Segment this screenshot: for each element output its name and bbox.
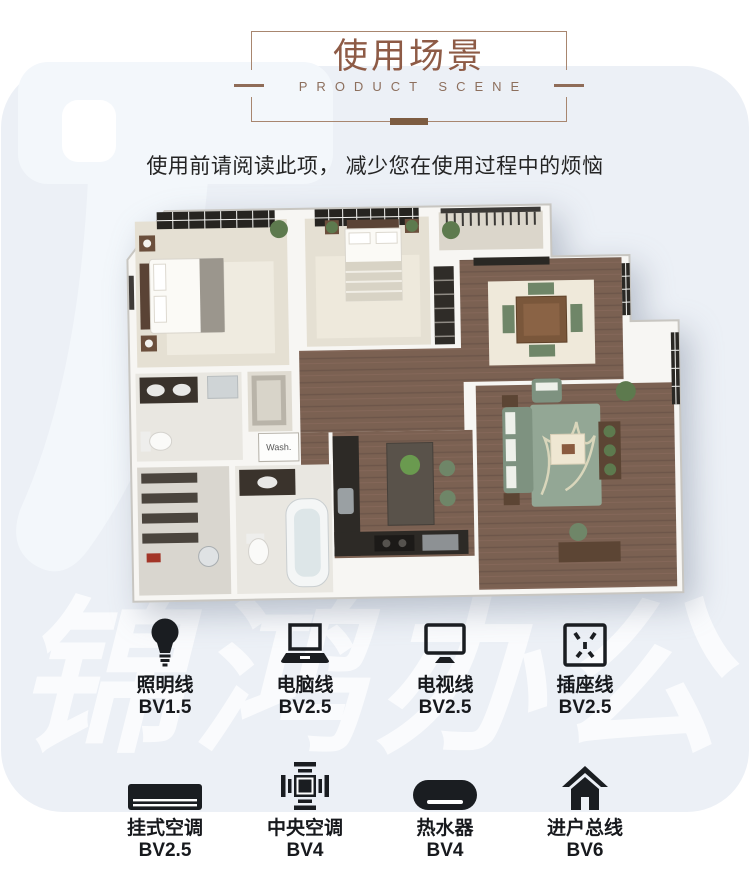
spec-value: BV2.5	[139, 840, 192, 862]
title-dash-right	[554, 84, 584, 87]
floor-plan-svg: Wash.	[124, 197, 686, 612]
spec-item-water-heater: 热水器 BV4	[375, 753, 515, 862]
spec-value: BV4	[427, 840, 464, 862]
spec-item-main-line: 进户总线 BV6	[515, 753, 655, 862]
title-box-border-segment	[566, 97, 567, 121]
socket-icon	[562, 610, 608, 668]
title-box-border-segment	[251, 97, 252, 121]
spec-label: 照明线	[136, 675, 193, 697]
floor-plan-image: Wash.	[124, 197, 686, 612]
title-dash-left	[234, 84, 264, 87]
spec-item-socket: 插座线 BV2.5	[515, 610, 655, 719]
section-subtitle-en: PRODUCT SCENE	[251, 79, 567, 94]
wash-frame-label: Wash.	[266, 442, 291, 452]
intro-text: 使用前请阅读此项， 减少您在使用过程中的烦恼	[0, 150, 750, 180]
spec-grid: 照明线 BV1.5 电脑线 BV2.5 电视线 BV2.5	[95, 610, 655, 862]
spec-item-wall-ac: 挂式空调 BV2.5	[95, 753, 235, 862]
tv-icon	[421, 610, 469, 668]
house-icon	[561, 753, 609, 811]
spec-label: 插座线	[556, 675, 613, 697]
spec-item-lighting: 照明线 BV1.5	[95, 610, 235, 719]
bulb-icon	[141, 610, 189, 668]
spec-value: BV4	[287, 840, 324, 862]
spec-label: 中央空调	[267, 818, 343, 840]
spec-value: BV6	[567, 840, 604, 862]
title-underline-accent	[390, 118, 428, 125]
spec-label: 热水器	[416, 818, 473, 840]
spec-value: BV2.5	[419, 697, 472, 719]
laptop-icon	[279, 610, 331, 668]
spec-value: BV2.5	[279, 697, 332, 719]
spec-label: 电脑线	[276, 675, 333, 697]
wall-ac-icon	[127, 753, 203, 811]
section-title: 使用场景	[251, 38, 567, 76]
spec-value: BV1.5	[139, 697, 192, 719]
spec-value: BV2.5	[559, 697, 612, 719]
water-heater-icon	[412, 753, 478, 811]
central-ac-icon	[280, 753, 330, 811]
spec-item-computer: 电脑线 BV2.5	[235, 610, 375, 719]
spec-label: 电视线	[416, 675, 473, 697]
spec-label: 挂式空调	[127, 818, 203, 840]
spec-item-tv: 电视线 BV2.5	[375, 610, 515, 719]
spec-label: 进户总线	[547, 818, 623, 840]
section-title-box: 使用场景 PRODUCT SCENE	[251, 31, 567, 122]
spec-item-central-ac: 中央空调 BV4	[235, 753, 375, 862]
